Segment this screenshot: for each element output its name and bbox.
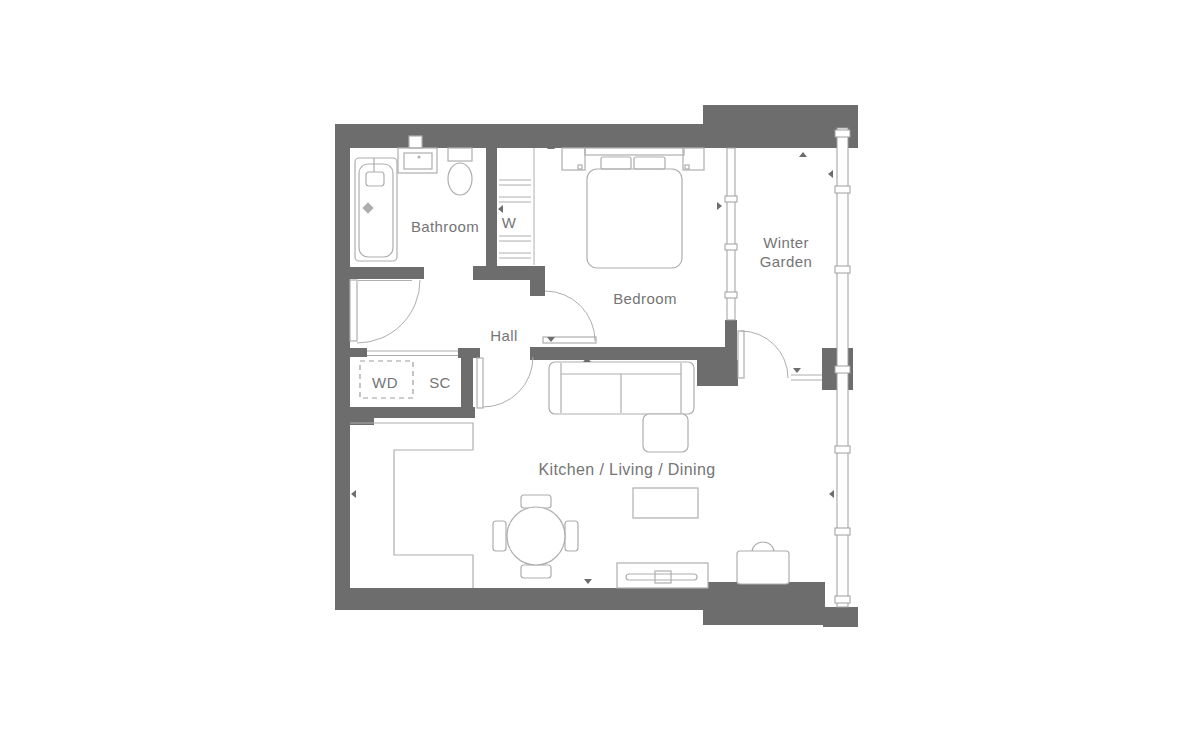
wall-bathroom-wardrobe-divider (486, 148, 497, 266)
marker-arrow-icon (793, 368, 801, 373)
bathtub-icon (355, 158, 397, 261)
mullion (835, 446, 850, 453)
pillow-icon (634, 157, 665, 169)
mullion (835, 596, 850, 603)
wall-bedroom-bottom (530, 347, 731, 360)
wall-top (335, 124, 706, 148)
dining-set (493, 495, 578, 578)
double-bed-icon (587, 169, 682, 268)
dining-chair-icon (521, 495, 551, 508)
wall-bottom-right-corner (823, 607, 858, 627)
wardrobe-closet (499, 148, 534, 265)
basin-inner (404, 153, 432, 169)
bathroom-fixtures (355, 136, 472, 261)
room-label-wardrobe: W (502, 214, 517, 231)
winter-garden-door-leaf (738, 331, 744, 378)
wall-bottom-right-block (703, 582, 825, 625)
living-door-swing (483, 357, 533, 407)
mullion (835, 130, 850, 137)
kitchen-counter-icon (350, 423, 473, 588)
room-label-kitchen-living-dining: Kitchen / Living / Dining (538, 461, 715, 479)
nightstand-icon (683, 148, 704, 170)
wall-bedroom-bottom-chunk (697, 360, 738, 386)
bath-faucet-icon (366, 172, 384, 186)
mullion (725, 196, 737, 202)
wall-closet-cap-right (458, 348, 480, 358)
sofa-chaise (643, 414, 688, 452)
wall-closet-cap-left (348, 348, 367, 357)
nightstand-knob (578, 165, 582, 169)
winter-garden-door-swing (741, 331, 788, 378)
pillow-icon (601, 157, 631, 169)
toilet-cistern-icon (448, 148, 472, 161)
wall-partition-stub (725, 320, 737, 360)
marker-arrow-icon (717, 202, 722, 210)
wall-top-right-block (703, 105, 858, 148)
bed-headboard (585, 148, 684, 155)
mullion (835, 266, 850, 273)
room-label-bedroom: Bedroom (613, 290, 677, 307)
living-door-leaf (477, 358, 483, 408)
dining-table-icon (507, 507, 565, 565)
bedroom-door-swing (545, 291, 595, 341)
room-label-winter-garden: Winter Garden (749, 233, 823, 271)
wall-left (335, 124, 350, 610)
marker-arrow-icon (498, 205, 503, 213)
wall-bedroom-corner-stub (530, 266, 545, 296)
mirror-cabinet-icon (409, 136, 422, 148)
mullion (725, 292, 737, 298)
tv-unit-icon (617, 563, 708, 588)
marker-arrow-icon (584, 579, 592, 584)
coffee-table-icon (633, 488, 698, 518)
dining-chair-icon (521, 565, 551, 578)
marker-arrow-icon (829, 490, 834, 498)
room-label-bathroom: Bathroom (411, 218, 479, 235)
wall-bathroom-bottom (350, 267, 424, 279)
bathroom-door-leaf (350, 280, 357, 341)
mullion (835, 366, 850, 373)
armchair-icon (737, 551, 789, 584)
floorplan-canvas: Bathroom W Hall Bedroom Winter Garden WD… (0, 0, 1200, 733)
bath-drain-icon (362, 202, 373, 213)
bathroom-door-swing (357, 280, 420, 343)
floorplan-drawing (0, 0, 1200, 733)
toilet-bowl-icon (448, 163, 472, 195)
wall-bottom (335, 588, 710, 610)
mullion (725, 244, 737, 250)
dining-chair-icon (565, 521, 578, 551)
marker-arrow-icon (799, 152, 807, 157)
mullion (835, 186, 850, 193)
dining-chair-icon (493, 521, 506, 551)
basin-tap-icon (418, 156, 421, 159)
nightstand-knob (685, 165, 689, 169)
room-label-washer-dryer: WD (372, 374, 398, 391)
mullion (835, 528, 850, 535)
room-label-storage-cupboard: SC (429, 374, 451, 391)
marker-arrow-icon (828, 170, 833, 178)
room-label-hall: Hall (490, 327, 517, 344)
bathtub-inner (359, 164, 393, 257)
marker-arrow-icon (351, 490, 356, 498)
bedroom-furniture (562, 148, 704, 268)
